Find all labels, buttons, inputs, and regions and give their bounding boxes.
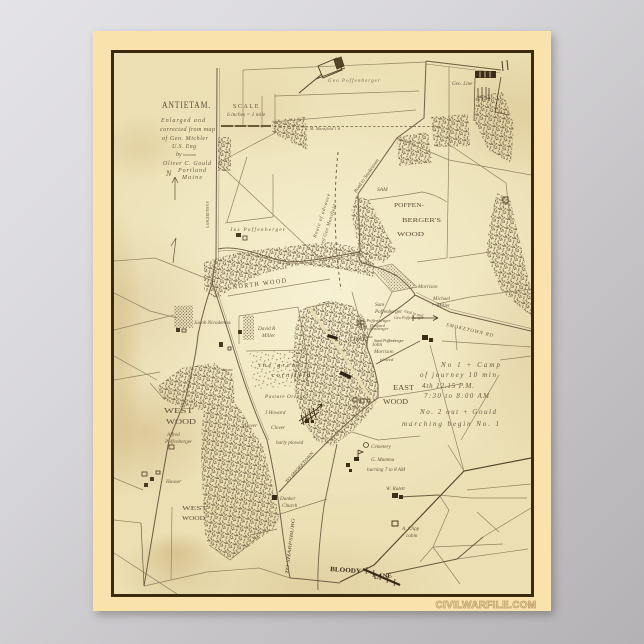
svg-text:U.S. Eng: U.S. Eng	[172, 144, 196, 150]
svg-text:Geo Poffenberger: Geo Poffenberger	[328, 77, 381, 84]
svg-text:SMOKETOWN RD: SMOKETOWN RD	[446, 323, 494, 339]
svg-text:Dunker: Dunker	[279, 496, 297, 502]
svg-text:Maine: Maine	[181, 175, 202, 181]
svg-text:No 1 + Camp: No 1 + Camp	[440, 361, 501, 369]
svg-text:Morrison: Morrison	[417, 284, 438, 290]
svg-text:straw: straw	[223, 367, 233, 372]
svg-text:Saml Poffenberger: Saml Poffenberger	[374, 338, 404, 343]
svg-text:Miller: Miller	[261, 333, 276, 339]
svg-text:plowed: plowed	[379, 357, 394, 362]
svg-text:Enlarged and: Enlarged and	[160, 118, 206, 124]
svg-text:Church: Church	[282, 503, 298, 509]
svg-text:J Howard: J Howard	[265, 410, 286, 416]
svg-text:Morrison: Morrison	[373, 349, 394, 355]
svg-text:Poffenberger: Poffenberger	[374, 308, 403, 315]
svg-text:A 100: A 100	[347, 405, 359, 410]
svg-text:SCALE: SCALE	[233, 104, 260, 110]
svg-text:WOOD: WOOD	[166, 418, 196, 426]
svg-text:Clover: Clover	[271, 425, 286, 431]
svg-text:house: house	[362, 334, 373, 339]
svg-text:S. HAGERSTOWN P.: S. HAGERSTOWN P.	[206, 201, 210, 228]
svg-text:ANTIETAM.: ANTIETAM.	[162, 101, 211, 111]
svg-text:barly plowed: barly plowed	[276, 440, 304, 446]
svg-text:by: by	[176, 152, 182, 158]
svg-text:Jos Poffenberger: Jos Poffenberger	[230, 226, 286, 233]
svg-text:WOOD: WOOD	[383, 398, 408, 406]
svg-text:Clover: Clover	[243, 423, 258, 429]
svg-text:TO SHARPSBURG: TO SHARPSBURG	[284, 517, 296, 574]
svg-text:6 inches = 1 mile: 6 inches = 1 mile	[227, 112, 266, 118]
svg-text:W. Rulett: W. Rulett	[386, 486, 405, 492]
svg-text:David R: David R	[257, 326, 276, 332]
svg-text:Alfred: Alfred	[166, 431, 180, 438]
svg-text:BLOODY: BLOODY	[330, 566, 362, 575]
svg-text:Hauser: Hauser	[165, 479, 182, 485]
svg-text:Michael: Michael	[432, 296, 451, 302]
svg-text:of journey 10 min: of journey 10 min	[420, 371, 497, 379]
svg-text:WOOD: WOOD	[397, 231, 424, 238]
svg-text:Poffenberger: Poffenberger	[164, 438, 193, 445]
svg-text:WEST: WEST	[164, 407, 194, 415]
svg-text:Sam: Sam	[375, 302, 384, 308]
svg-text:marching begin No. 1: marching begin No. 1	[402, 420, 499, 428]
svg-text:SAM: SAM	[377, 187, 388, 193]
svg-text:A. Clipp: A. Clipp	[401, 526, 420, 532]
svg-text:Geo. Line: Geo. Line	[452, 81, 473, 87]
svg-text:BERGER'S: BERGER'S	[402, 217, 441, 224]
svg-text:No. 2 out + Gould: No. 2 out + Gould	[419, 408, 497, 416]
svg-text:corrected from map: corrected from map	[160, 126, 215, 133]
svg-text:Miller: Miller	[436, 303, 451, 309]
svg-text:TO SMOKETOWN: TO SMOKETOWN	[284, 450, 315, 483]
svg-text:Portland: Portland	[177, 168, 207, 174]
svg-text:POFFEN-: POFFEN-	[394, 202, 424, 209]
svg-text:WEST: WEST	[182, 505, 207, 512]
svg-text:I. M. Mansfield 1 d: I. M. Mansfield 1 d	[305, 126, 341, 131]
svg-text:N: N	[165, 169, 172, 178]
svg-text:WOOD: WOOD	[182, 515, 205, 522]
svg-text:of Gen. Michler: of Gen. Michler	[162, 135, 209, 142]
svg-text:G. Mumma: G. Mumma	[371, 457, 395, 463]
svg-text:burning 7 to 8 AM: burning 7 to 8 AM	[367, 467, 406, 473]
svg-text:Pasture Orchard: Pasture Orchard	[264, 394, 308, 400]
svg-text:Oliver C. Gould: Oliver C. Gould	[163, 161, 212, 167]
svg-text:Cemetery: Cemetery	[371, 444, 392, 450]
svg-text:7:30 to 8:00 AM: 7:30 to 8:00 AM	[424, 392, 490, 400]
svg-text:cabin: cabin	[406, 533, 418, 539]
svg-text:EAST: EAST	[393, 384, 415, 392]
svg-text:Jacob Nicodemus: Jacob Nicodemus	[194, 320, 231, 326]
svg-text:the great: the great	[259, 363, 299, 369]
svg-text:Dunkard: Dunkard	[369, 323, 386, 328]
svg-text:4th 12.15 P.M.: 4th 12.15 P.M.	[422, 382, 474, 390]
